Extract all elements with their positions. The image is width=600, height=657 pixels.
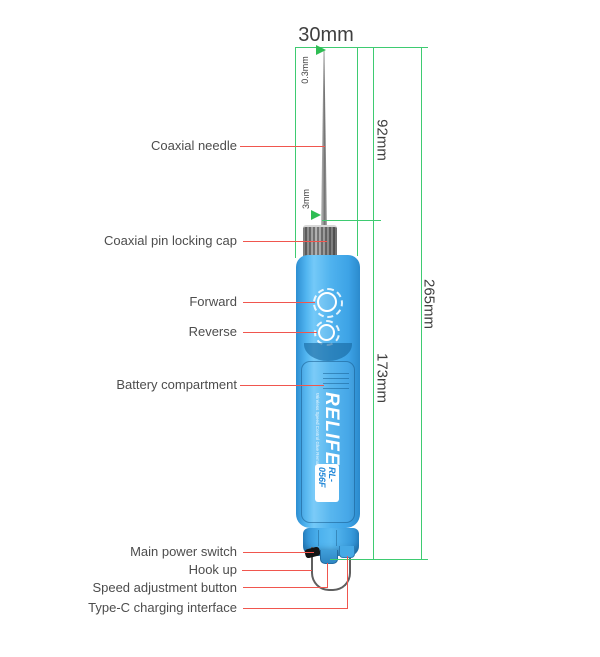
leader-speed-button-v	[327, 563, 328, 588]
label-coaxial-needle: Coaxial needle	[151, 138, 237, 154]
battery-door-line	[323, 388, 349, 389]
device-body: RELIFE RL-056F Wireless Speed Control Gl…	[296, 255, 360, 528]
label-type-c: Type-C charging interface	[88, 600, 237, 616]
forward-button	[317, 292, 337, 312]
body-shading	[304, 343, 352, 361]
label-power-switch: Main power switch	[130, 544, 237, 560]
leader-forward	[243, 302, 315, 303]
product-diagram: RELIFE RL-056F Wireless Speed Control Gl…	[0, 0, 600, 657]
label-speed-button: Speed adjustment button	[92, 580, 237, 596]
leader-reverse	[243, 332, 317, 333]
dim-proj-right	[357, 47, 358, 256]
dim-proj-left	[295, 47, 296, 258]
dim-line-bottom	[330, 559, 428, 560]
leader-locking-cap	[243, 241, 327, 242]
speed-adjustment-button	[320, 550, 338, 564]
dim-line-mid	[322, 220, 381, 221]
leader-type-c-v	[347, 556, 348, 609]
label-battery: Battery compartment	[116, 377, 237, 393]
dim-30mm: 30mm	[298, 24, 354, 47]
dim-arrow-base	[311, 210, 321, 220]
label-forward: Forward	[189, 294, 237, 310]
dim-3mm: 3mm	[301, 189, 311, 209]
battery-door-line	[323, 373, 349, 374]
leader-battery	[240, 385, 324, 386]
battery-door-line	[323, 378, 349, 379]
dim-265mm: 265mm	[421, 279, 438, 329]
leader-coaxial-needle	[240, 146, 325, 147]
leader-type-c	[243, 608, 348, 609]
brand-block: RELIFE RL-056F Wireless Speed Control Gl…	[312, 392, 342, 502]
leader-speed-button	[243, 587, 328, 588]
dim-92mm: 92mm	[374, 119, 391, 161]
label-reverse: Reverse	[189, 324, 237, 340]
dim-line-top	[295, 47, 428, 48]
cap-notch	[336, 530, 337, 546]
cap-notch	[318, 530, 319, 546]
label-hook-up: Hook up	[189, 562, 237, 578]
label-locking-cap: Coaxial pin locking cap	[104, 233, 237, 249]
leader-hook-up	[242, 570, 312, 571]
battery-door-line	[323, 383, 349, 384]
brand-logo: RELIFE	[320, 392, 342, 466]
dim-173mm: 173mm	[374, 353, 391, 403]
coaxial-needle	[321, 50, 327, 226]
dim-0-3mm: 0.3mm	[300, 56, 310, 84]
brand-tagline: Wireless Speed Control Glue Removal Pen	[315, 393, 320, 479]
reverse-button	[318, 324, 335, 341]
leader-power-switch	[243, 552, 314, 553]
